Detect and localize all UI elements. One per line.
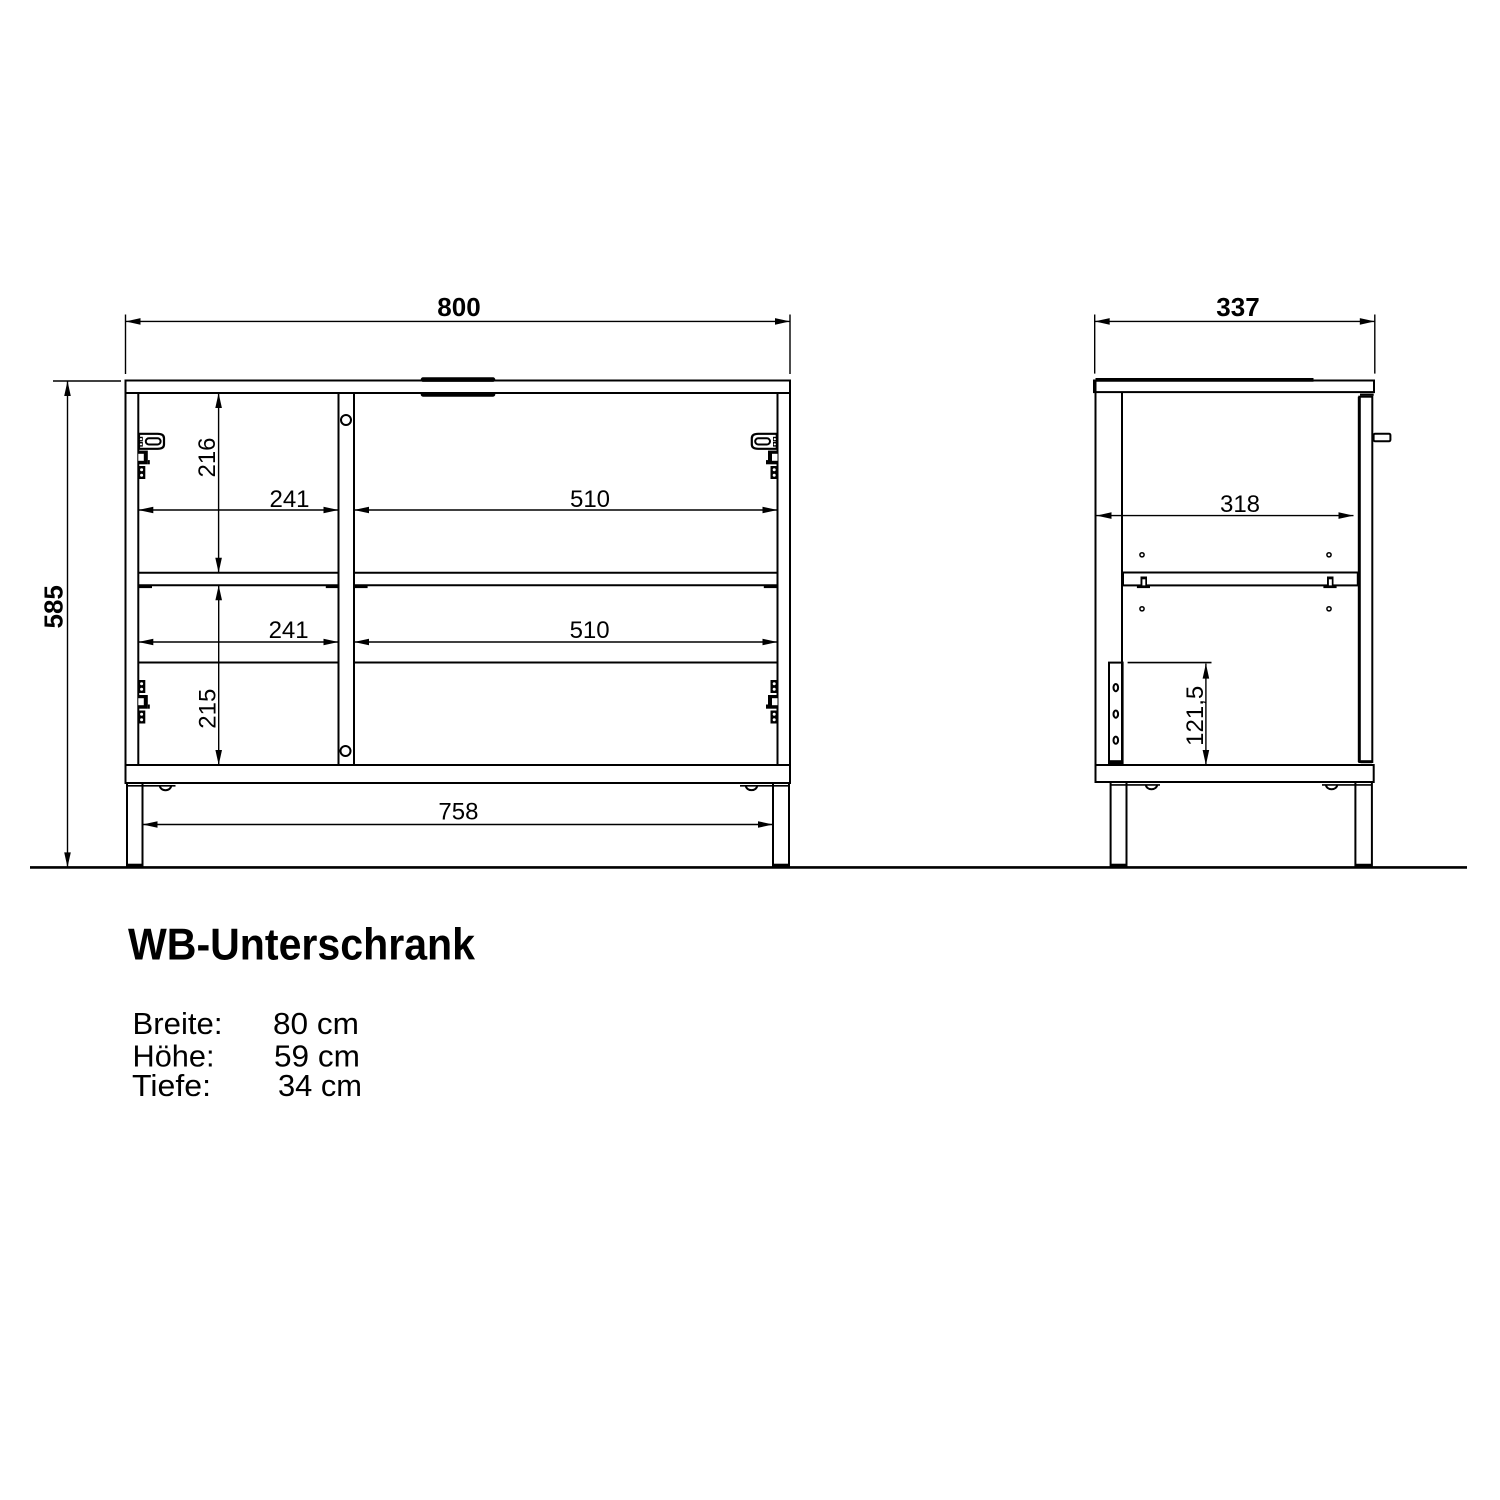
svg-text:510: 510 xyxy=(570,486,610,513)
svg-text:Tiefe:: Tiefe: xyxy=(132,1070,211,1103)
svg-text:216: 216 xyxy=(194,437,221,477)
svg-text:59 cm: 59 cm xyxy=(274,1040,360,1073)
svg-text:585: 585 xyxy=(38,585,68,628)
svg-text:318: 318 xyxy=(1220,491,1260,518)
svg-text:337: 337 xyxy=(1216,292,1259,322)
svg-text:510: 510 xyxy=(570,617,610,644)
svg-text:Höhe:: Höhe: xyxy=(133,1040,215,1073)
svg-text:241: 241 xyxy=(269,486,309,513)
svg-text:241: 241 xyxy=(269,617,309,644)
svg-text:34 cm: 34 cm xyxy=(278,1070,362,1103)
svg-text:Breite:: Breite: xyxy=(133,1008,223,1041)
svg-text:800: 800 xyxy=(437,292,480,322)
svg-text:215: 215 xyxy=(195,689,222,729)
svg-text:WB-Unterschrank: WB-Unterschrank xyxy=(128,921,475,970)
svg-text:121,5: 121,5 xyxy=(1182,686,1209,746)
svg-text:758: 758 xyxy=(438,799,478,826)
svg-text:80 cm: 80 cm xyxy=(273,1008,359,1041)
